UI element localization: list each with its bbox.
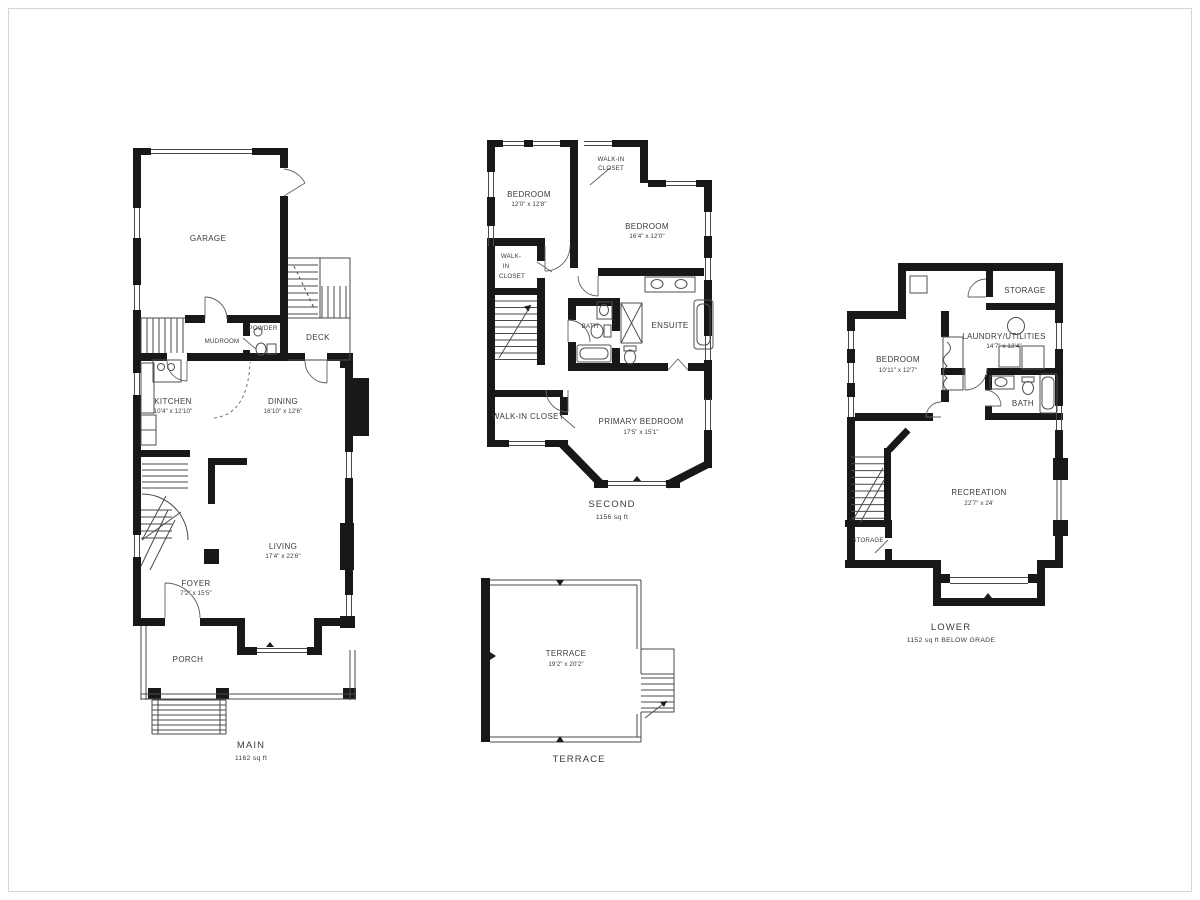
bedroom-closet-icon: [943, 337, 963, 390]
deck-stairs-icon: [288, 258, 350, 360]
walls-lower: [845, 263, 1068, 606]
powder-toilet-icon: [254, 328, 276, 355]
lower-area: 1152 sq ft BELOW GRADE: [907, 637, 996, 644]
lower-bath-label: BATH: [1012, 399, 1034, 408]
shower-icon: [621, 303, 642, 343]
recreation-label: RECREATION: [951, 488, 1006, 497]
living-label: LIVING: [269, 542, 297, 551]
living-dims: 17'4" x 22'6": [265, 553, 300, 560]
wic-top-line2: CLOSET: [598, 165, 624, 172]
floor-plan-drawing: GARAGE MUDROOM POWDER DECK KITCHEN 10'4"…: [0, 0, 1200, 900]
lower-bedroom-label: BEDROOM: [876, 355, 920, 364]
walls-terrace: [481, 578, 490, 742]
bedroom2-label: BEDROOM: [625, 222, 669, 231]
deck-label: DECK: [306, 333, 330, 342]
sink-icon: [995, 378, 1007, 387]
bedroom2-dims: 16'4" x 12'0": [629, 233, 664, 240]
laundry-label: LAUNDRY/UTILITIES: [962, 332, 1046, 341]
porch-label: PORCH: [173, 655, 204, 664]
floor-plan-main: GARAGE MUDROOM POWDER DECK KITCHEN 10'4"…: [133, 148, 369, 762]
terrace-label: TERRACE: [546, 649, 587, 658]
main-area: 1162 sq ft: [235, 755, 267, 762]
storage-top-label: STORAGE: [1004, 286, 1045, 295]
interior-stairs-icon: [141, 464, 188, 570]
stairs-icon: [495, 301, 537, 360]
floor-plan-second: BEDROOM 12'0" x 12'8" WALK-IN CLOSET BED…: [487, 140, 713, 521]
wic-bottom-label: WALK-IN CLOSET: [492, 412, 564, 421]
powder-label: POWDER: [248, 325, 277, 332]
lower-bedroom-dims: 10'11" x 12'7": [879, 367, 917, 374]
second-area: 1156 sq ft: [596, 514, 628, 521]
recreation-dims: 22'7" x 24': [964, 500, 993, 507]
foyer-label: FOYER: [181, 579, 210, 588]
toilet-icon: [1023, 382, 1034, 395]
second-caption: SECOND: [588, 499, 635, 510]
bay-tick: [266, 642, 274, 647]
bath-label: BATH: [582, 323, 599, 330]
bedroom1-label: BEDROOM: [507, 190, 551, 199]
floor-plan-lower: STORAGE LAUNDRY/UTILITIES 14'7" x 12'4" …: [845, 263, 1068, 644]
terrace-caption: TERRACE: [552, 754, 605, 765]
floor-plan-terrace: TERRACE 19'2" x 20'2" TERRACE: [481, 578, 674, 765]
wic-left-line2: IN: [503, 263, 510, 270]
dining-dims: 16'10" x 12'6": [264, 408, 303, 415]
bay-tick: [984, 593, 992, 598]
main-caption: MAIN: [237, 740, 265, 751]
wic-left-line3: CLOSET: [499, 273, 525, 280]
walls-main: [133, 148, 369, 699]
mudroom-label: MUDROOM: [205, 338, 240, 345]
primary-bedroom-label: PRIMARY BEDROOM: [599, 417, 684, 426]
angled-wall-lower: [889, 430, 908, 450]
porch-outline: [141, 626, 355, 734]
floor-plan-sheet: GARAGE MUDROOM POWDER DECK KITCHEN 10'4"…: [0, 0, 1200, 900]
primary-bedroom-dims: 17'5" x 15'1": [623, 429, 658, 436]
dryer-icon: [1022, 346, 1044, 369]
laundry-dims: 14'7" x 12'4": [986, 343, 1021, 350]
bathtub-icon: [1040, 374, 1057, 413]
bedroom1-dims: 12'0" x 12'8": [511, 201, 546, 208]
stairs-icon: [851, 457, 884, 523]
kitchen-dims: 10'4" x 12'10": [154, 408, 193, 415]
terrace-dims: 19'2" x 20'2": [548, 661, 583, 668]
kitchen-label: KITCHEN: [154, 397, 192, 406]
bath-fixtures: [577, 302, 612, 362]
terrace-stairs-icon: [641, 649, 674, 718]
ensuite-label: ENSUITE: [651, 321, 688, 330]
wic-top-line1: WALK-IN: [598, 156, 625, 163]
garage-label: GARAGE: [190, 234, 226, 243]
storage-bottom-label: STORAGE: [852, 537, 884, 544]
bathtub-icon: [694, 300, 713, 349]
bay-tick: [633, 476, 641, 481]
bay-walls-second: [561, 443, 708, 485]
wic-left-line1: WALK-: [501, 253, 521, 260]
lower-caption: LOWER: [931, 622, 971, 633]
foyer-dims: 7'2" x 15'5": [180, 590, 212, 597]
exterior-stairs-icon: [141, 318, 185, 353]
dining-label: DINING: [268, 397, 298, 406]
